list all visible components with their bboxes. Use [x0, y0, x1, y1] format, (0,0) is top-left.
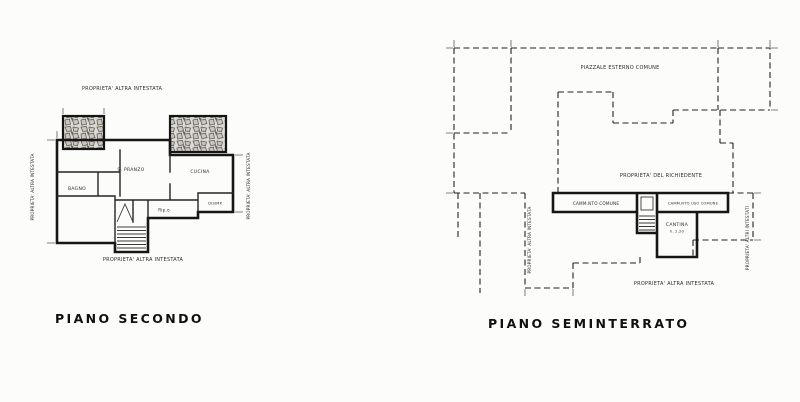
- plan-title-secondo: PIANO SECONDO: [55, 311, 204, 326]
- label-bottom-seminterrato: PROPRIETA' ALTRA INTESTATA: [634, 281, 715, 287]
- label-left-seminterrato: PROPRIETA' ALTRA INTESTATA: [527, 206, 532, 273]
- hatched-terrace-right: [170, 116, 226, 152]
- room-label-cantina-height: h. 2.20: [670, 230, 684, 234]
- label-right-secondo: PROPRIETA' ALTRA INTESTATA: [246, 152, 251, 219]
- room-label-pranzo: S. PRANZO: [117, 167, 144, 173]
- plan-piano-seminterrato: PIAZZALE ESTERNO COMUNE PROPRIETA' DEL R…: [446, 40, 778, 331]
- plan-title-seminterrato: PIANO SEMINTERRATO: [488, 316, 689, 331]
- room-label-disimpegno: DISIMP.: [208, 202, 222, 206]
- stair-landing: [641, 197, 653, 210]
- label-corridor-right: CAMM.NTO USO COMUNE: [668, 202, 719, 206]
- label-right-seminterrato: PROPRIETA' ALTRI INTESTATI: [745, 206, 750, 270]
- stairs-icon: [117, 227, 146, 248]
- boundary-dashed-lower-left: [454, 193, 640, 293]
- label-top-seminterrato: PIAZZALE ESTERNO COMUNE: [580, 65, 659, 71]
- label-top-secondo: PROPRIETA' ALTRA INTESTATA: [82, 86, 163, 92]
- room-label-bagno: BAGNO: [68, 186, 86, 192]
- room-label-cucina: CUCINA: [190, 169, 210, 175]
- hatched-terrace-left: [63, 116, 104, 149]
- corner-ticks-seminterrato: [446, 40, 778, 296]
- label-middle-seminterrato: PROPRIETA' DEL RICHIEDENTE: [620, 173, 702, 179]
- stairs-icon-seminterrato: [639, 216, 655, 230]
- room-label-rip: Rip.o: [158, 208, 170, 213]
- label-corridor-left: CAMM.NTO COMUNE: [573, 201, 619, 206]
- label-bottom-secondo: PROPRIETA' ALTRA INTESTATA: [103, 257, 184, 263]
- plan-piano-secondo: PROPRIETA' ALTRA INTESTATA PROPRIETA' AL…: [30, 86, 251, 326]
- door-swing-icon: [117, 204, 133, 222]
- plan-sheet: PROPRIETA' ALTRA INTESTATA PROPRIETA' AL…: [0, 0, 800, 402]
- room-label-cantina: CANTINA: [666, 222, 689, 228]
- label-left-secondo: PROPRIETA' ALTRA INTESTATA: [30, 153, 35, 220]
- interior-walls: [57, 150, 233, 243]
- floorplan-drawing: PROPRIETA' ALTRA INTESTATA PROPRIETA' AL…: [0, 0, 800, 402]
